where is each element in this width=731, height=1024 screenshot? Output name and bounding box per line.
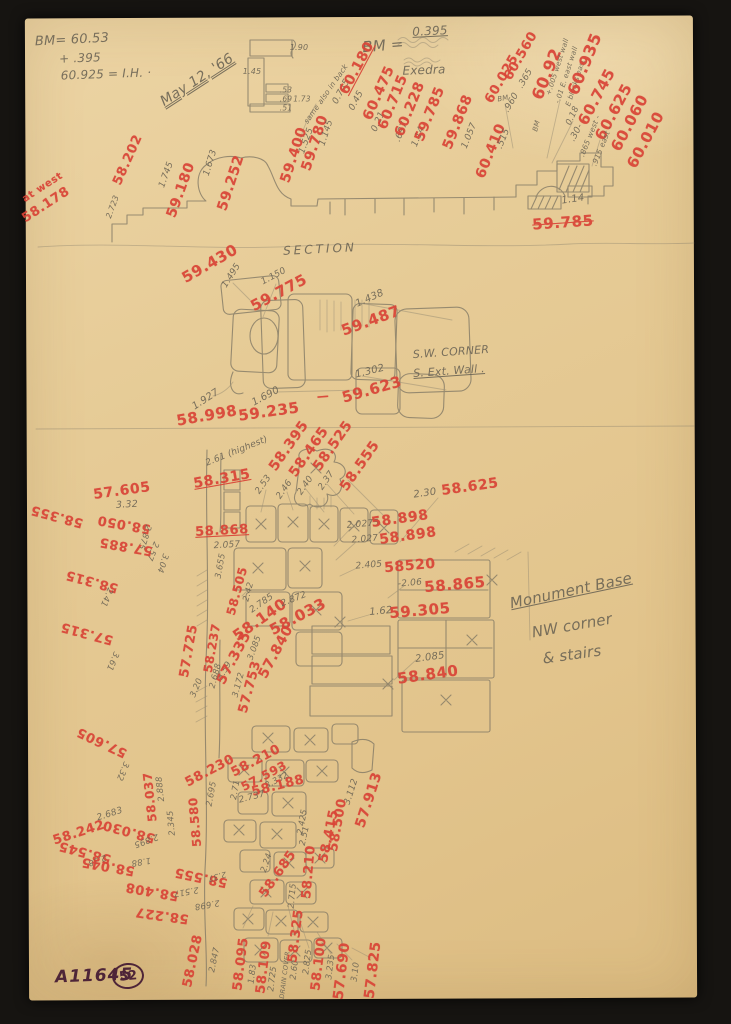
measurement-annotation: 3.61 xyxy=(104,650,119,671)
sw-corner-note: S.W. CORNER xyxy=(412,344,489,360)
measurement-annotation: 1.495 xyxy=(221,262,243,289)
measurement-annotation: -2.06 xyxy=(398,578,423,589)
measurement-annotation: .53 xyxy=(280,86,293,94)
elevation-annotation: 58.210 xyxy=(300,845,318,900)
measurement-annotation: 1.14 xyxy=(561,193,585,206)
measurement-annotation: 2.46 xyxy=(275,479,294,501)
measurement-annotation: 3.20 xyxy=(189,677,204,698)
measurement-annotation: 2.30 xyxy=(413,487,437,500)
elevation-annotation: 59.235 xyxy=(238,400,301,423)
measurement-annotation: 1.88 xyxy=(131,855,152,867)
elevation-annotation: 58.202 xyxy=(111,133,145,187)
benchmark-line3: 60.925 = I.H. · xyxy=(61,66,152,81)
elevation-annotation: 58.868 xyxy=(195,523,249,539)
elevation-annotation: — xyxy=(316,389,330,402)
elevation-annotation: 58.625 xyxy=(440,476,499,498)
measurement-annotation: 2.695 xyxy=(206,781,219,807)
monument-note-line1: Monument Base xyxy=(509,571,634,612)
elevation-annotation: 57.825 xyxy=(363,941,384,1000)
elevation-annotation: 58.555 xyxy=(338,438,383,493)
annotation-layer: BM= 60.53+ .39560.925 = I.H. ·May 12, '6… xyxy=(0,0,731,1024)
measurement-annotation: 2.027 xyxy=(351,534,378,545)
measurement-annotation: 2.42 xyxy=(242,581,255,602)
measurement-annotation: 3.32 xyxy=(114,760,129,781)
elevation-annotation: 58.580 xyxy=(187,797,203,848)
date-note: May 12, '66 xyxy=(158,51,236,108)
bm-value: 0.395 xyxy=(412,24,448,38)
section-title: SECTION xyxy=(283,241,357,257)
measurement-annotation: 3.04 xyxy=(155,552,169,573)
elevation-annotation: 58.865 xyxy=(424,575,487,595)
measurement-annotation: BM xyxy=(532,120,542,133)
measurement-annotation: 2.405 xyxy=(355,560,382,571)
monument-note-line3: & stairs xyxy=(542,643,603,666)
elevation-annotation: 57.605 xyxy=(75,725,129,760)
measurement-annotation: 2.37 xyxy=(317,470,336,492)
measurement-annotation: .51 xyxy=(280,104,293,112)
elevation-annotation: 59.252 xyxy=(215,153,246,212)
elevation-annotation: 57.690 xyxy=(332,942,353,1001)
exedra-note: Exedra xyxy=(402,63,446,76)
elevation-annotation: 58.028 xyxy=(181,933,205,988)
measurement-annotation: 2.723 xyxy=(105,194,121,219)
measurement-annotation: 1.73 xyxy=(293,95,311,103)
measurement-annotation: 3.10 xyxy=(351,962,362,983)
measurement-annotation: 1.673 xyxy=(203,149,219,177)
measurement-annotation: 2.345 xyxy=(167,810,178,836)
measurement-annotation: 2.517 xyxy=(173,885,199,898)
benchmark-line1: BM= 60.53 xyxy=(35,32,110,49)
elevation-annotation: 59.623 xyxy=(340,374,403,405)
measurement-annotation: 2.847 xyxy=(208,947,222,974)
elevation-annotation: 58.355 xyxy=(29,503,84,529)
measurement-annotation: 2.61 (highest) xyxy=(205,435,270,468)
elevation-annotation: 58.840 xyxy=(397,663,460,686)
measurement-annotation: 2.51 xyxy=(299,825,311,846)
elevation-annotation: 57.315 xyxy=(59,620,114,646)
elevation-annotation: 58.045 xyxy=(80,855,135,877)
monument-note-line2: NW corner xyxy=(531,612,613,641)
measurement-annotation: 2.725 xyxy=(267,966,279,992)
measurement-annotation: 2.53 xyxy=(254,474,273,496)
measurement-annotation: 3.655 xyxy=(215,553,228,579)
elevation-annotation: 59.305 xyxy=(389,601,452,621)
measurement-annotation: 3.32 xyxy=(116,500,138,511)
elevation-annotation: 59.487 xyxy=(340,303,403,338)
measurement-annotation: 1.45 xyxy=(243,68,262,76)
elevation-annotation: 58520 xyxy=(384,557,437,575)
measurement-annotation: 2.715 xyxy=(288,883,299,909)
elevation-annotation: 59.785 xyxy=(532,213,594,232)
elevation-annotation: 58.998 xyxy=(175,403,238,428)
elevation-annotation: 57.725 xyxy=(178,623,200,678)
benchmark-line2: + .395 xyxy=(59,51,101,64)
measurement-annotation: 2.057 xyxy=(213,541,240,551)
elevation-annotation: 58.315 xyxy=(192,467,251,491)
measurement-annotation: 2.698 xyxy=(194,898,220,911)
measurement-annotation: 2.888 xyxy=(155,776,166,802)
measurement-annotation: .69 xyxy=(280,95,293,103)
measurement-annotation: 1.90 xyxy=(290,44,309,52)
elevation-annotation: 58.227 xyxy=(134,905,189,925)
measurement-annotation: 2.737 xyxy=(238,790,266,805)
s-ext-wall-note: S. Ext. Wall . xyxy=(413,363,485,379)
elevation-annotation: 58.408 xyxy=(124,880,179,902)
scanned-field-drawing: BM= 60.53+ .39560.925 = I.H. ·May 12, '6… xyxy=(0,0,731,1024)
